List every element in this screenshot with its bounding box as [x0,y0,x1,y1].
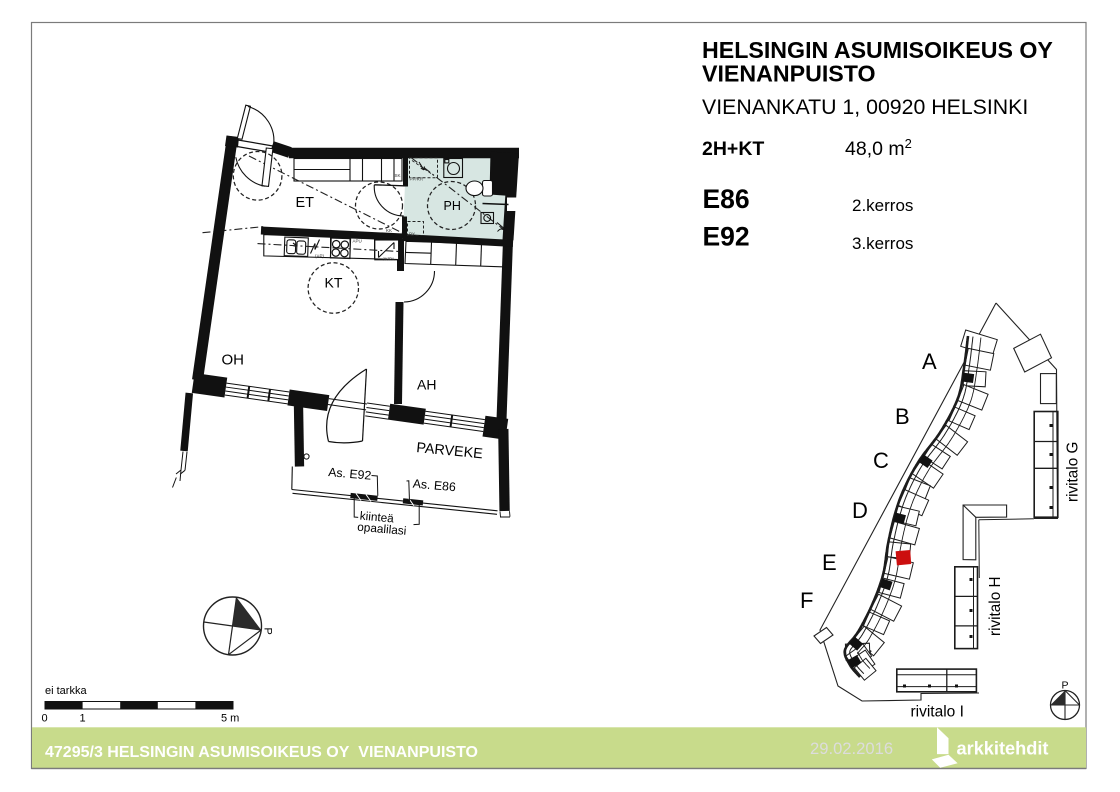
svg-text:PARVEKE: PARVEKE [416,440,484,462]
svg-text:ei tarkka: ei tarkka [45,685,87,697]
svg-text:As. E86: As. E86 [412,477,456,495]
svg-text:VIENANKATU 1, 00920 HELSINKI: VIENANKATU 1, 00920 HELSINKI [702,95,1028,119]
svg-text:5 m: 5 m [221,713,239,725]
svg-text:arkkitehdit: arkkitehdit [957,739,1049,759]
svg-text:HELSINGIN ASUMISOIKEUS OY: HELSINGIN ASUMISOIKEUS OY [702,37,1053,63]
svg-text:OH: OH [222,352,245,369]
svg-text:47295/3 HELSINGIN ASUMISOIKEUS: 47295/3 HELSINGIN ASUMISOIKEUS OY VIENAN… [45,744,478,761]
svg-text:1: 1 [80,713,86,725]
svg-text:ET: ET [296,195,315,211]
svg-text:KT: KT [325,275,343,291]
svg-text:D: D [852,498,868,523]
svg-text:(AP): (AP) [315,254,325,259]
svg-text:PH: PH [444,199,461,213]
svg-text:P: P [1062,680,1069,692]
svg-text:PP/KR: PP/KR [410,177,424,182]
svg-text:rivitalo G: rivitalo G [1065,442,1082,502]
svg-text:2.kerros: 2.kerros [852,196,913,215]
svg-text:opaalilasi: opaalilasi [357,520,407,538]
svg-text:E: E [822,550,837,575]
svg-text:KK: KK [386,228,392,233]
svg-text:F: F [800,588,813,613]
svg-text:48,0 m2: 48,0 m2 [845,136,912,160]
svg-text:29.02.2016: 29.02.2016 [810,739,893,758]
svg-text:E92: E92 [703,222,750,252]
svg-text:AH: AH [417,377,436,393]
svg-text:3.kerros: 3.kerros [852,234,913,253]
svg-text:SK: SK [395,173,401,178]
svg-text:0: 0 [42,713,48,725]
svg-text:APU: APU [353,239,362,244]
svg-text:As. E92: As. E92 [328,465,372,483]
svg-text:JK/PA: JK/PA [383,257,395,262]
svg-text:rivitalo I: rivitalo I [911,704,964,721]
svg-text:2H+KT: 2H+KT [702,138,764,160]
svg-text:P: P [262,628,274,635]
svg-text:B: B [895,404,910,429]
svg-text:VIENANPUISTO: VIENANPUISTO [702,61,876,87]
svg-text:C: C [873,448,889,473]
svg-text:E86: E86 [703,184,750,214]
svg-text:A: A [922,349,937,374]
svg-text:PY: PY [409,232,415,237]
svg-text:rivitalo H: rivitalo H [987,577,1004,637]
